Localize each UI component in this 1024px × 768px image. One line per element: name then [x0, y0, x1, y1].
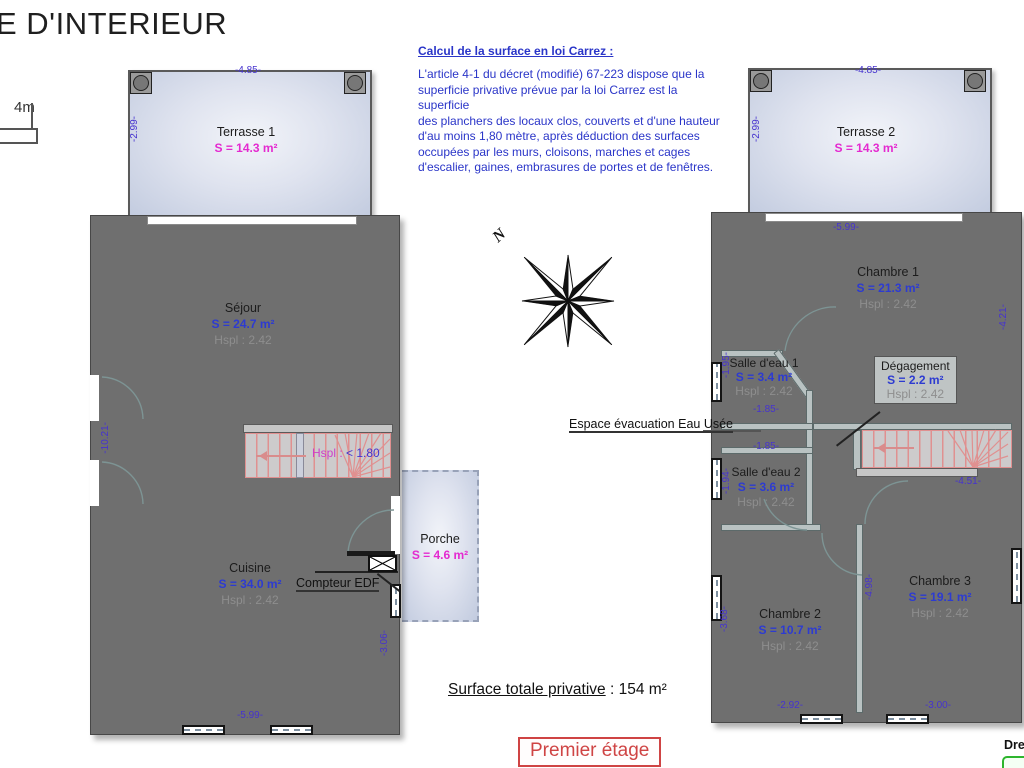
salle-eau2-ceiling: Hspl : 2.42: [731, 495, 800, 510]
dim-ch3-left: -4.98-: [864, 574, 875, 600]
sejour-name: Séjour: [211, 300, 274, 316]
dim-ch3-bottom: -3.00-: [910, 700, 966, 711]
carrez-note-heading: Calcul de la surface en loi Carrez :: [418, 44, 730, 58]
dim-ground-right: -3.06-: [379, 630, 390, 656]
window: [765, 213, 963, 222]
door-opening: [90, 460, 99, 506]
chambre2-ceiling: Hspl : 2.42: [758, 638, 821, 654]
scale-bar-tick: [31, 103, 33, 130]
window: [800, 714, 843, 724]
total-surface-separator: :: [606, 681, 619, 698]
sejour-area: S = 24.7 m²: [211, 316, 274, 332]
chambre2-label: Chambre 2 S = 10.7 m² Hspl : 2.42: [758, 606, 821, 654]
floor-plan-page: E D'INTERIEUR 4m Calcul de la surface en…: [0, 0, 1024, 768]
door-arc: [100, 460, 145, 506]
chambre1-area: S = 21.3 m²: [856, 280, 919, 296]
sejour-label: Séjour S = 24.7 m² Hspl : 2.42: [211, 300, 274, 348]
window: [886, 714, 929, 724]
salle-eau1-ceiling: Hspl : 2.42: [729, 384, 798, 398]
dim-terrace2-top: -4.85-: [748, 65, 988, 76]
salle-eau1-name: Salle d'eau 1: [729, 356, 798, 370]
salle-eau1-area: S = 3.4 m²: [729, 370, 798, 384]
stairs-height-label: Hspl : < 1.80: [312, 446, 380, 460]
carrez-note: Calcul de la surface en loi Carrez : L'a…: [418, 44, 730, 176]
chambre3-name: Chambre 3: [908, 573, 971, 589]
dim-stairs: -4.51-: [938, 476, 998, 487]
chambre3-area: S = 19.1 m²: [908, 589, 971, 605]
stair-landing: [243, 424, 393, 433]
door-arc: [783, 303, 838, 353]
dim-ff-right: -4.21-: [998, 304, 1009, 330]
chambre1-name: Chambre 1: [856, 264, 919, 280]
cuisine-ceiling: Hspl : 2.42: [218, 592, 281, 608]
salle-eau1-label: Salle d'eau 1 S = 3.4 m² Hspl : 2.42: [729, 356, 798, 398]
terrace2-name: Terrasse 2: [834, 124, 897, 140]
terrace1-area: S = 14.3 m²: [214, 140, 277, 156]
total-surface: Surface totale privative : 154 m²: [448, 681, 667, 699]
chambre1-label: Chambre 1 S = 21.3 m² Hspl : 2.42: [856, 264, 919, 312]
floor-name-badge: Premier étage: [518, 737, 661, 767]
chambre1-ceiling: Hspl : 2.42: [856, 296, 919, 312]
scale-bar: [0, 128, 38, 144]
porche-label: Porche S = 4.6 m²: [412, 531, 468, 563]
door-arc: [863, 479, 910, 526]
dim-ch2-left: -3.68-: [719, 606, 730, 632]
porche-area-value: S = 4.6 m²: [412, 547, 468, 563]
stairs-height-label-value: < 1.80: [346, 446, 380, 460]
terrace2-area: S = 14.3 m²: [834, 140, 897, 156]
cuisine-name: Cuisine: [218, 560, 281, 576]
partition-wall: [813, 423, 1012, 430]
window: [147, 216, 357, 225]
dim-terrace1-left: -2.99-: [129, 116, 140, 142]
partition-wall: [721, 423, 813, 430]
salle-eau2-name: Salle d'eau 2: [731, 465, 800, 480]
dim-ground-left: -10.21-: [100, 422, 111, 454]
stair-direction-arrow: [256, 455, 306, 457]
porche-name: Porche: [412, 531, 468, 547]
window: [1011, 548, 1022, 604]
dim-se2-left: -1.94-: [721, 468, 732, 494]
compass-rose-icon: [504, 237, 632, 365]
dim-se1-left: -1.95-: [721, 352, 732, 378]
chambre2-name: Chambre 2: [758, 606, 821, 622]
sejour-ceiling: Hspl : 2.42: [211, 332, 274, 348]
door-arc: [820, 531, 864, 577]
stair-direction-arrow: [874, 447, 914, 449]
chambre3-ceiling: Hspl : 2.42: [908, 605, 971, 621]
degagement-ceiling: Hspl : 2.42: [881, 387, 950, 401]
page-title: E D'INTERIEUR: [0, 6, 227, 42]
dim-ch2-bottom: -2.92-: [764, 700, 816, 711]
degagement-label: Dégagement S = 2.2 m² Hspl : 2.42: [874, 356, 957, 404]
total-surface-value: 154 m²: [619, 681, 667, 698]
terrace1-label: Terrasse 1 S = 14.3 m²: [214, 124, 277, 156]
salle-eau2-label: Salle d'eau 2 S = 3.6 m² Hspl : 2.42: [731, 465, 800, 510]
chambre3-label: Chambre 3 S = 19.1 m² Hspl : 2.42: [908, 573, 971, 621]
door-opening: [90, 375, 99, 421]
carrez-note-body: L'article 4-1 du décret (modifié) 67-223…: [418, 67, 730, 176]
partition-wall: [853, 430, 861, 470]
degagement-name: Dégagement: [881, 359, 950, 373]
dim-ground-bottom: -5.99-: [220, 710, 280, 721]
edf-meter-icon: [368, 555, 397, 572]
dim-terrace1-top: -4.85-: [128, 65, 368, 76]
stair-winder-lines: [948, 430, 1010, 468]
door-arc: [346, 508, 396, 554]
dim-terrace2-left: -2.99-: [751, 116, 762, 142]
corner-green-box: [1002, 756, 1024, 768]
compteur-edf-label: Compteur EDF: [296, 576, 379, 592]
door-arc: [100, 375, 145, 421]
dim-ff-top: -5.99-: [816, 222, 876, 233]
terrace2-label: Terrasse 2 S = 14.3 m²: [834, 124, 897, 156]
chambre2-area: S = 10.7 m²: [758, 622, 821, 638]
salle-eau2-area: S = 3.6 m²: [731, 480, 800, 495]
cuisine-area: S = 34.0 m²: [218, 576, 281, 592]
cuisine-label: Cuisine S = 34.0 m² Hspl : 2.42: [218, 560, 281, 608]
dim-shaft: -1.85-: [740, 441, 792, 452]
terrace1-name: Terrasse 1: [214, 124, 277, 140]
window: [182, 725, 225, 735]
evacuation-label: Espace évacuation Eau Usée: [569, 417, 733, 433]
window: [270, 725, 313, 735]
total-surface-label: Surface totale privative: [448, 681, 606, 698]
corner-cropped-text: Dre: [1004, 738, 1024, 752]
degagement-area: S = 2.2 m²: [881, 373, 950, 387]
stairs-height-label-prefix: Hspl :: [312, 446, 343, 460]
dim-se1-bottom: -1.85-: [740, 404, 792, 415]
